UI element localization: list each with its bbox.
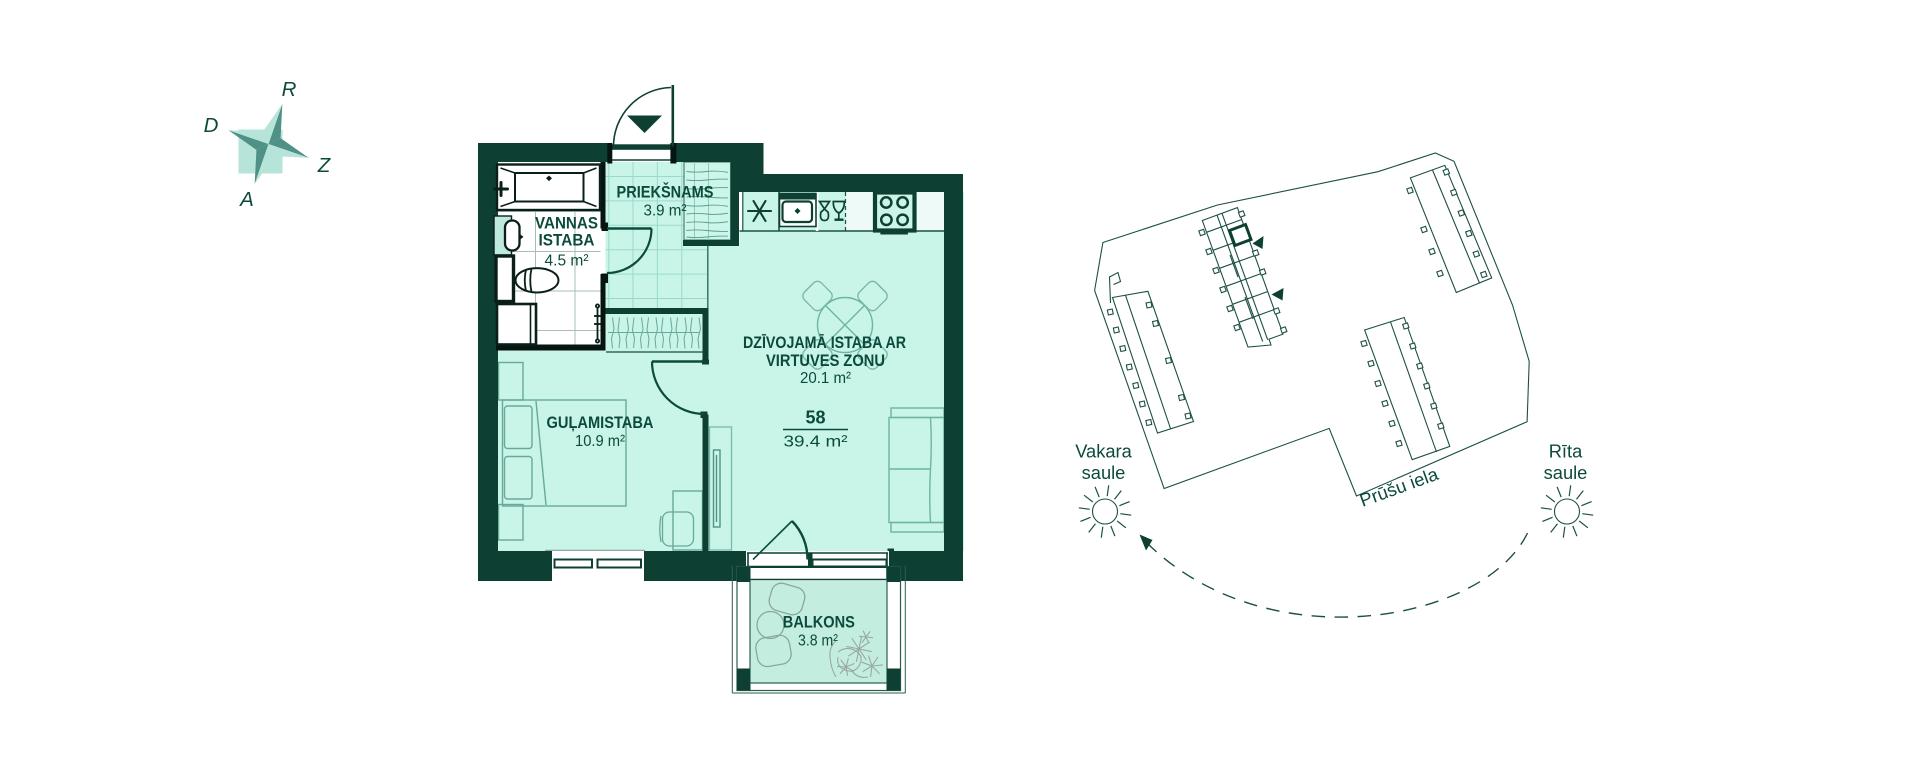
svg-text:3.9 m²: 3.9 m² [644, 203, 688, 220]
svg-text:10.9 m²: 10.9 m² [575, 433, 626, 450]
svg-text:58: 58 [805, 408, 825, 428]
svg-text:D: D [204, 114, 219, 137]
svg-text:R: R [282, 78, 297, 101]
svg-text:4.5 m²: 4.5 m² [545, 253, 590, 270]
svg-text:Vakara: Vakara [1075, 440, 1132, 461]
svg-text:Z: Z [317, 154, 332, 177]
svg-text:BALKONS: BALKONS [783, 613, 855, 632]
svg-text:saule: saule [1082, 462, 1126, 483]
svg-text:GUĻAMISTABA: GUĻAMISTABA [547, 413, 654, 432]
svg-text:A: A [238, 188, 254, 211]
svg-text:20.1 m²: 20.1 m² [800, 370, 852, 387]
svg-text:3.8 m²: 3.8 m² [798, 633, 839, 650]
svg-text:ISTABA: ISTABA [539, 231, 595, 250]
svg-text:PRIEKŠNAMS: PRIEKŠNAMS [617, 183, 714, 202]
svg-text:Rīta: Rīta [1549, 440, 1583, 461]
svg-text:saule: saule [1544, 462, 1588, 483]
svg-text:DZĪVOJAMĀ ISTABA AR: DZĪVOJAMĀ ISTABA AR [743, 333, 906, 352]
svg-text:39.4 m²: 39.4 m² [784, 434, 849, 451]
svg-text:VIRTUVES ZONU: VIRTUVES ZONU [766, 351, 885, 370]
